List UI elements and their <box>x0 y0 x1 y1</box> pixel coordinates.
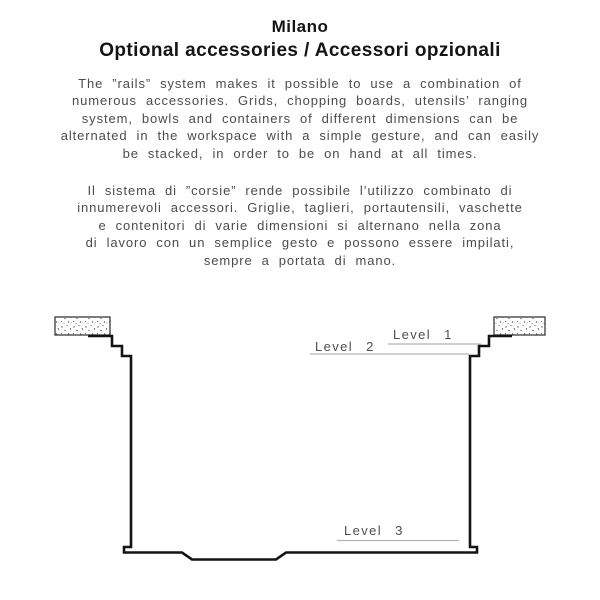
countertop-right <box>494 317 545 335</box>
level-3-label: Level 3 <box>344 523 404 538</box>
countertop-left <box>55 317 110 335</box>
catalog-page: Milano Optional accessories / Accessori … <box>0 0 600 600</box>
sink-profile-outline <box>88 336 512 560</box>
sink-cross-section-drawing <box>0 0 600 600</box>
level-1-label: Level 1 <box>393 327 453 342</box>
sink-cross-section-figure: Level 1 Level 2 Level 3 <box>0 0 600 600</box>
level-2-label: Level 2 <box>315 339 375 354</box>
